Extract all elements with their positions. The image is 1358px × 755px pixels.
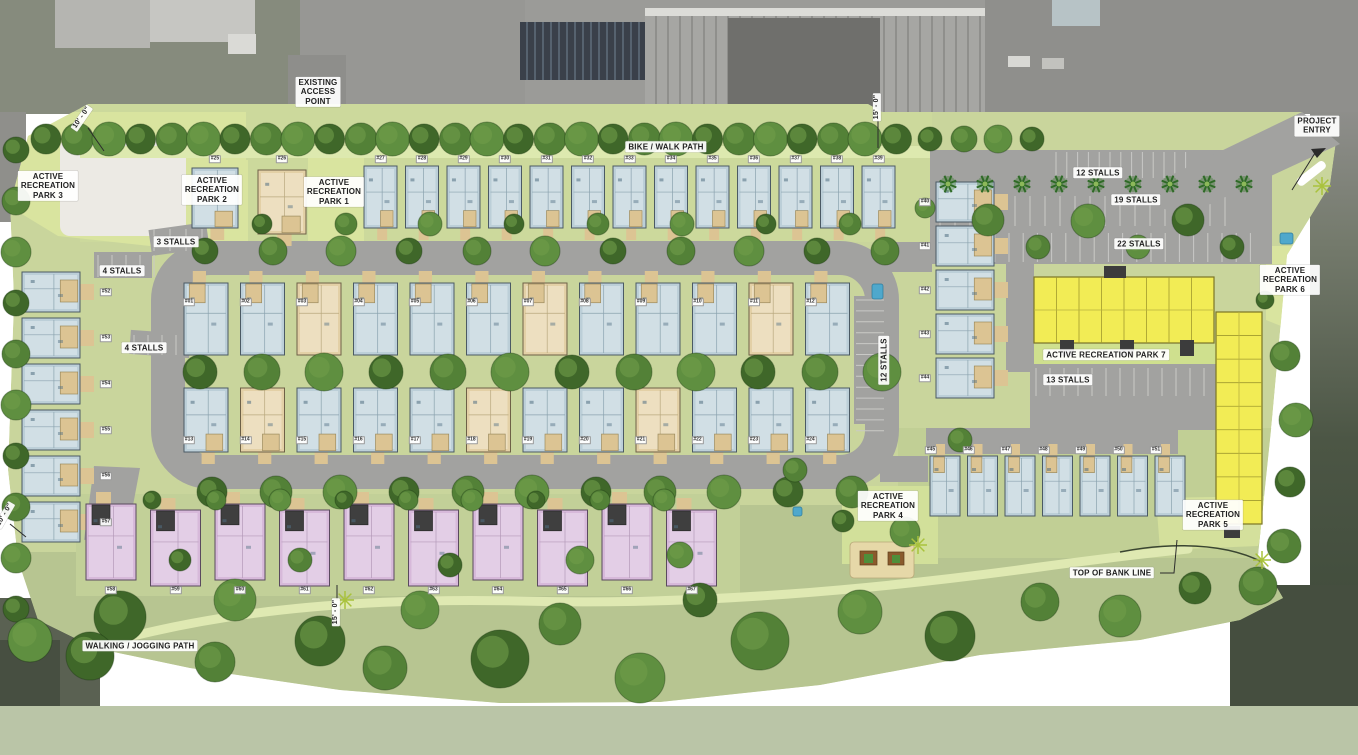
- building-porch: [1104, 266, 1126, 278]
- ornamental-plant: [1253, 551, 1271, 569]
- loop-southeast-connector: [880, 456, 928, 482]
- townhome-building-north: [1034, 277, 1214, 343]
- house-footprint: [297, 271, 341, 355]
- house-footprint: [280, 498, 330, 586]
- house-footprint: [241, 271, 285, 355]
- townhome-building-east: [1216, 312, 1262, 524]
- pool: [872, 284, 883, 299]
- house-footprint: [410, 271, 454, 355]
- ornamental-plant: [909, 536, 927, 554]
- building-porch: [1060, 340, 1074, 356]
- house-footprint: [580, 271, 624, 355]
- house-footprint: [523, 271, 567, 355]
- north-south-drive: [1006, 256, 1034, 372]
- house-footprint: [636, 271, 680, 355]
- house-footprint: [467, 271, 511, 355]
- house-footprint: [667, 498, 717, 586]
- building-porch: [1120, 340, 1134, 356]
- parking-bay-4b: [129, 330, 191, 358]
- house-footprint: [86, 492, 136, 580]
- building-porch: [1180, 340, 1194, 356]
- house-footprint: [602, 492, 652, 580]
- building-porch: [1224, 526, 1240, 538]
- pool: [793, 507, 802, 516]
- pool: [1280, 233, 1293, 244]
- drive-connector: [1098, 418, 1126, 442]
- house-footprint: [354, 271, 398, 355]
- house-footprint: [806, 271, 850, 355]
- ornamental-plant: [336, 591, 354, 609]
- house-footprint: [693, 271, 737, 355]
- house-footprint: [749, 271, 793, 355]
- house-footprint: [151, 498, 201, 586]
- ornamental-plant: [1313, 177, 1331, 195]
- parking-bay-4a: [94, 252, 152, 278]
- site-plan-drawing: [0, 0, 1358, 755]
- house-footprint: [184, 271, 228, 355]
- site-plan-canvas: #25#26#27#28#29#30#31#32#33#34#35#36#37#…: [0, 0, 1358, 755]
- park-6-area: [1266, 246, 1328, 332]
